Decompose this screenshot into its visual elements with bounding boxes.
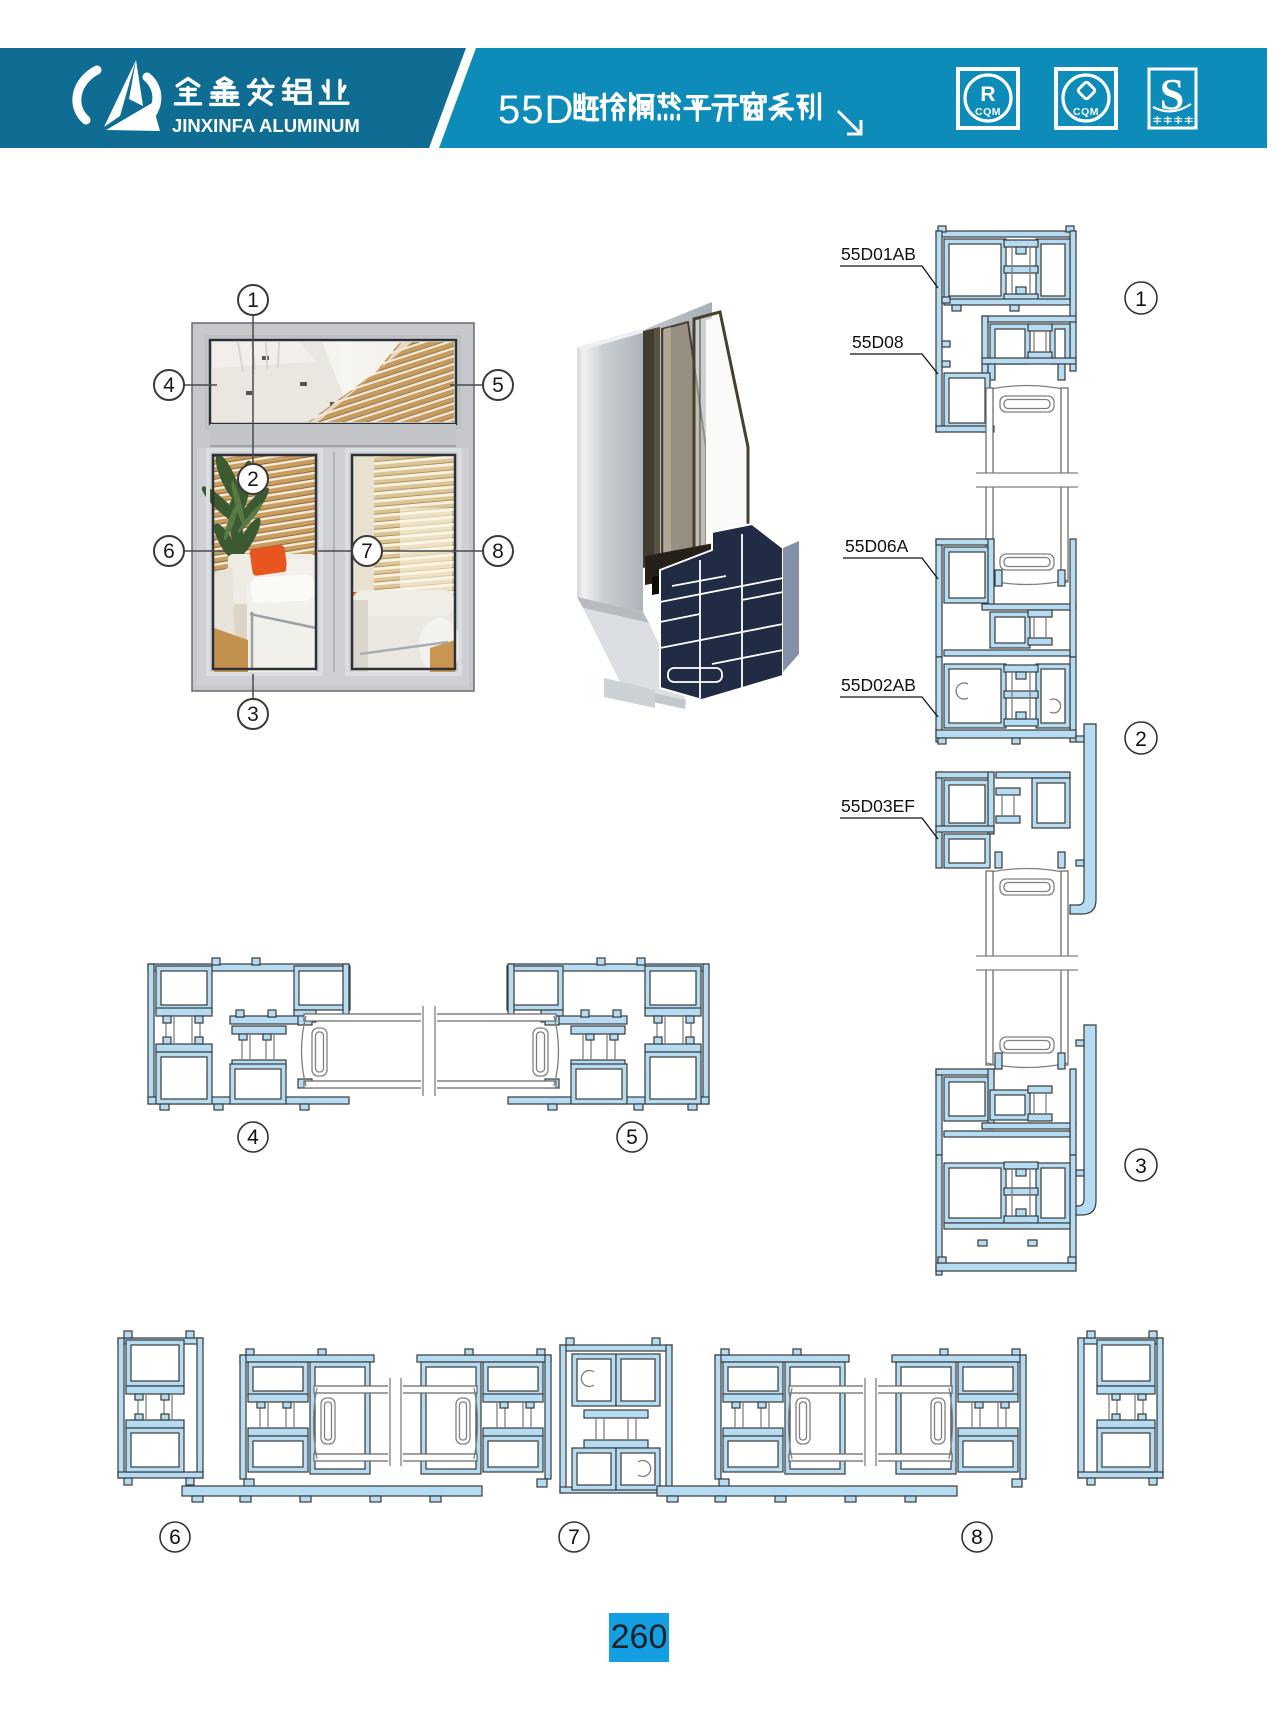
svg-text:55D03EF: 55D03EF [841, 796, 915, 816]
svg-text:CQM: CQM [1073, 106, 1099, 118]
svg-text:1: 1 [1135, 288, 1147, 311]
svg-text:55D06A: 55D06A [845, 536, 909, 556]
svg-text:55D: 55D [498, 88, 574, 132]
svg-text:3: 3 [247, 703, 259, 726]
svg-text:55D08: 55D08 [852, 332, 904, 352]
svg-text:5: 5 [626, 1126, 638, 1149]
svg-text:6: 6 [169, 1526, 181, 1549]
svg-text:2: 2 [1135, 728, 1147, 751]
svg-text:JINXINFA ALUMINUM: JINXINFA ALUMINUM [172, 115, 360, 136]
svg-text:55D02AB: 55D02AB [841, 675, 916, 695]
svg-text:55D01AB: 55D01AB [841, 244, 916, 264]
svg-text:2: 2 [247, 468, 259, 491]
svg-text:8: 8 [492, 540, 504, 563]
svg-text:1: 1 [247, 289, 259, 312]
svg-text:4: 4 [247, 1126, 259, 1149]
svg-text:4: 4 [163, 374, 175, 397]
svg-text:CQM: CQM [975, 106, 1001, 118]
svg-text:6: 6 [163, 540, 175, 563]
svg-text:7: 7 [568, 1526, 580, 1549]
svg-text:R: R [980, 83, 995, 106]
svg-text:5: 5 [492, 374, 504, 397]
svg-text:3: 3 [1135, 1155, 1147, 1178]
svg-text:8: 8 [971, 1526, 983, 1549]
svg-text:7: 7 [361, 540, 373, 563]
